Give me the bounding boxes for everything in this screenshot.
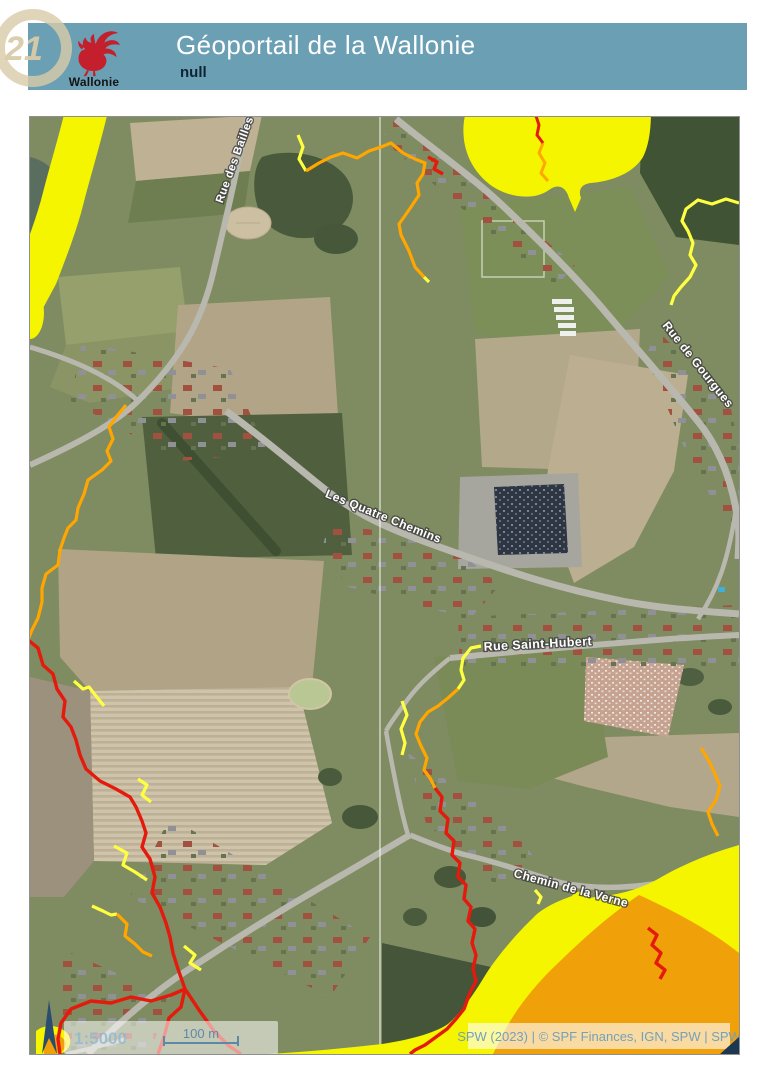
attribution-text: SPW (2023) | © SPF Finances, IGN, SPW | … bbox=[457, 1029, 739, 1044]
header-band: Wallonie Géoportail de la Wallonie null bbox=[28, 23, 747, 90]
caravan bbox=[554, 307, 574, 312]
caravan bbox=[558, 323, 576, 328]
trees bbox=[318, 768, 342, 786]
scale-ratio: 1:5000 bbox=[74, 1029, 127, 1048]
trees bbox=[708, 699, 732, 715]
map-subtitle: null bbox=[180, 64, 207, 81]
caravan bbox=[552, 299, 572, 304]
field bbox=[58, 549, 324, 691]
trees bbox=[434, 866, 466, 888]
map-svg: Rue des BaillesRue de GourguesLes Quatre… bbox=[30, 117, 739, 1054]
caravan bbox=[560, 331, 576, 336]
watermark-text: 21 bbox=[5, 30, 43, 69]
map-viewport: Rue des BaillesRue de GourguesLes Quatre… bbox=[30, 117, 739, 1054]
rooster-icon bbox=[66, 27, 122, 77]
trees bbox=[403, 908, 427, 926]
trees bbox=[342, 805, 378, 829]
green-pond bbox=[289, 679, 331, 709]
factory-roof-detail bbox=[494, 484, 568, 555]
field bbox=[30, 677, 94, 897]
woods bbox=[314, 224, 358, 254]
field-ridged-furrows bbox=[90, 687, 332, 865]
page-title: Géoportail de la Wallonie bbox=[176, 30, 476, 61]
caravan bbox=[556, 315, 574, 320]
swimming-pool bbox=[718, 587, 725, 592]
scale-bar-label: 100 m bbox=[183, 1026, 219, 1041]
